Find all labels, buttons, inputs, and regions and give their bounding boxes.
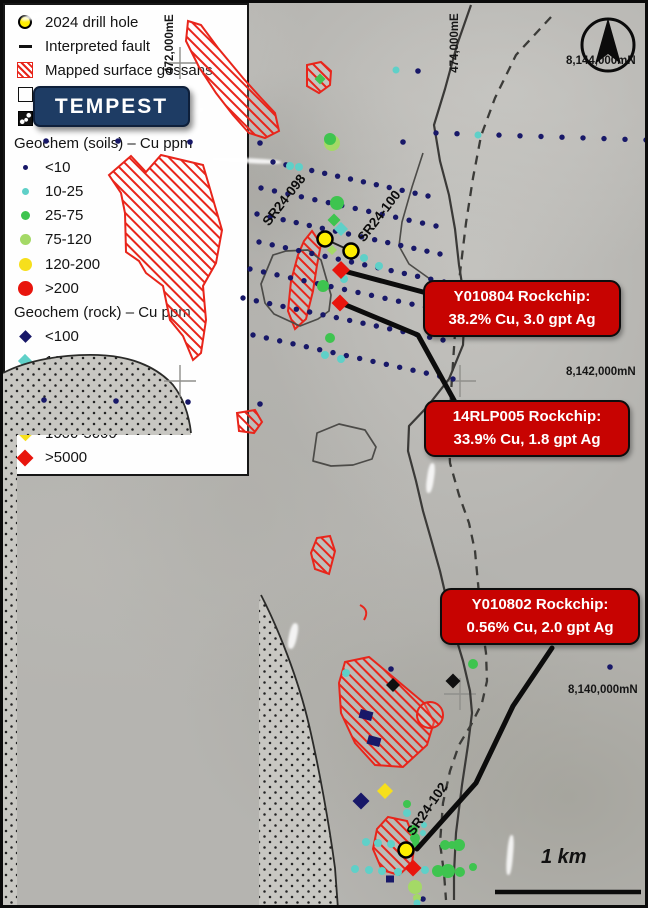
project-title: TEMPEST xyxy=(55,95,168,119)
soil-sample-dot xyxy=(299,194,304,199)
soil-sample-dot xyxy=(322,171,327,176)
soil-sample-dot xyxy=(247,266,252,271)
soil-sample-dot xyxy=(384,362,389,367)
rock-sample-diamond xyxy=(353,793,370,810)
soil-sample-dot xyxy=(393,215,398,220)
soil-sample-dot xyxy=(388,666,394,672)
callout-value: 33.9% Cu, 1.8 gpt Ag xyxy=(432,428,622,451)
rock-sample-diamond xyxy=(446,674,461,689)
soil-sample-dot xyxy=(353,206,358,211)
soil-sample-dot xyxy=(280,304,285,309)
soil-sample-dot xyxy=(349,259,354,264)
soil-sample-dot xyxy=(328,284,333,289)
proterozoic-areas xyxy=(3,355,338,908)
soil-sample-dot xyxy=(317,347,322,352)
drill-hole-marker xyxy=(318,232,333,247)
soil-sample-dot xyxy=(362,262,367,267)
soil-sample-dot xyxy=(454,131,459,136)
soil-sample-dot xyxy=(387,326,392,331)
soil-sample-dot xyxy=(351,865,359,873)
soil-sample-dot xyxy=(185,399,191,405)
soil-sample-dot xyxy=(257,140,263,146)
soil-sample-dot xyxy=(421,866,429,874)
soil-sample-dot xyxy=(397,365,402,370)
soil-sample-dot xyxy=(309,251,314,256)
soil-sample-dot xyxy=(385,240,390,245)
contact-loop xyxy=(313,424,376,466)
soil-sample-dot xyxy=(362,838,370,846)
soil-sample-dot xyxy=(256,239,261,244)
soil-sample-dot xyxy=(398,243,403,248)
easting-label-474000: 474,000mE xyxy=(449,13,461,72)
soil-sample-dot xyxy=(374,839,382,847)
northing-label-8142000: 8,142,000mN xyxy=(566,366,636,378)
soil-sample-dot xyxy=(374,182,379,187)
soil-sample-dot xyxy=(294,307,299,312)
soil-sample-dot xyxy=(453,839,465,851)
callout-value: 0.56% Cu, 2.0 gpt Ag xyxy=(448,616,632,639)
soil-sample-dot xyxy=(433,130,438,135)
scale-bar-label: 1 km xyxy=(541,846,587,869)
soil-sample-dot xyxy=(321,351,329,359)
soil-sample-dot xyxy=(294,220,299,225)
soil-sample-dot xyxy=(415,274,420,279)
high-grade-rock-diamond xyxy=(332,295,349,312)
callout-y010802: Y010802 Rockchip: 0.56% Cu, 2.0 gpt Ag xyxy=(440,588,640,645)
high-grade-rock-diamond xyxy=(332,261,350,279)
soil-sample-dot xyxy=(295,163,303,171)
soil-sample-dot xyxy=(393,67,400,74)
dashed-fault xyxy=(440,17,551,900)
soil-sample-dot xyxy=(43,138,49,144)
soil-sample-dot xyxy=(559,135,564,140)
soil-sample-dot xyxy=(412,190,417,195)
project-title-banner: TEMPEST xyxy=(33,86,190,127)
soil-sample-dot xyxy=(374,323,379,328)
callout-14rlp005: 14RLP005 Rockchip: 33.9% Cu, 1.8 gpt Ag xyxy=(424,400,630,457)
soil-sample-dot xyxy=(415,68,421,74)
north-arrow-icon xyxy=(579,16,637,74)
soil-sample-dot xyxy=(643,137,648,142)
soil-sample-dot xyxy=(322,254,327,259)
soil-sample-dot xyxy=(517,133,522,138)
soil-sample-dot xyxy=(369,293,374,298)
soil-sample-dot xyxy=(469,863,477,871)
soil-sample-dot xyxy=(346,231,351,236)
soil-sample-dot xyxy=(342,287,347,292)
soil-sample-dot xyxy=(365,866,373,874)
soil-sample-dot xyxy=(424,370,429,375)
soil-sample-dot xyxy=(402,271,407,276)
soil-sample-dot xyxy=(355,290,360,295)
soil-sample-dot xyxy=(360,321,365,326)
soil-sample-dot xyxy=(307,223,312,228)
soil-sample-dot xyxy=(378,867,386,875)
soil-sample-dot xyxy=(622,137,627,142)
northing-label-8140000: 8,140,000mN xyxy=(568,684,638,696)
soil-sample-dot xyxy=(304,344,309,349)
soil-sample-dot xyxy=(387,840,395,848)
drill-hole-marker xyxy=(344,244,359,259)
soil-sample-dot xyxy=(437,251,442,256)
soil-sample-dot xyxy=(254,211,259,216)
soil-sample-dot xyxy=(399,188,404,193)
soil-sample-dot xyxy=(324,133,336,145)
soil-sample-dot xyxy=(296,248,301,253)
soil-sample-dot xyxy=(334,315,339,320)
soil-sample-dot xyxy=(382,296,387,301)
soil-sample-dot xyxy=(411,246,416,251)
callout-title: 14RLP005 Rockchip: xyxy=(432,405,622,428)
soil-sample-dot xyxy=(317,280,329,292)
soil-sample-dot xyxy=(414,900,421,907)
soil-sample-dot xyxy=(288,275,293,280)
soil-sample-dot xyxy=(307,309,312,314)
easting-label-472000: 472,000mE xyxy=(164,14,176,73)
soil-sample-dot xyxy=(396,299,401,304)
callout-title: Y010802 Rockchip: xyxy=(448,593,632,616)
soil-sample-dot xyxy=(425,193,430,198)
soil-sample-dot xyxy=(277,338,282,343)
soil-sample-dot xyxy=(325,333,335,343)
soil-sample-dot xyxy=(250,332,255,337)
soil-sample-dot xyxy=(41,397,47,403)
soil-sample-dot xyxy=(607,664,613,670)
soil-sample-dot xyxy=(440,337,445,342)
soil-sample-dot xyxy=(337,355,345,363)
soil-sample-dot xyxy=(270,242,275,247)
soil-sample-dot xyxy=(240,295,245,300)
soil-sample-dot xyxy=(408,880,422,894)
soil-sample-dot xyxy=(290,341,295,346)
soil-sample-dot xyxy=(283,245,288,250)
rock-sample-square xyxy=(386,876,394,883)
map-canvas: TEMPEST 472,000mE 474,000mE 8,144,000mN … xyxy=(0,0,648,908)
soil-sample-dot xyxy=(394,868,402,876)
soil-sample-dot xyxy=(264,335,269,340)
soil-sample-dot xyxy=(267,301,272,306)
soil-sample-dot xyxy=(475,132,482,139)
soil-sample-dot xyxy=(406,217,411,222)
soil-sample-dot xyxy=(450,376,455,381)
soil-sample-dot xyxy=(330,350,335,355)
soil-sample-dot xyxy=(455,867,465,877)
soil-sample-dot xyxy=(187,139,193,145)
soil-sample-dot xyxy=(309,168,314,173)
soil-sample-dot xyxy=(261,269,266,274)
soil-sample-dot xyxy=(270,159,275,164)
grid-crosses xyxy=(164,47,476,710)
soil-sample-dot xyxy=(388,268,393,273)
callout-value: 38.2% Cu, 3.0 gpt Ag xyxy=(431,308,613,331)
soil-sample-dot xyxy=(320,312,325,317)
soil-sample-dot xyxy=(403,800,411,808)
soil-sample-dot xyxy=(375,262,383,270)
soil-sample-dot xyxy=(360,254,368,262)
soil-sample-dot xyxy=(272,188,277,193)
soil-sample-dot xyxy=(580,135,585,140)
soil-sample-dot xyxy=(361,179,366,184)
soil-sample-dot xyxy=(410,368,415,373)
soil-sample-dot xyxy=(400,139,406,145)
soil-sample-dot xyxy=(420,220,425,225)
soil-sample-dot xyxy=(258,185,263,190)
soil-sample-dot xyxy=(357,356,362,361)
callout-title: Y010804 Rockchip: xyxy=(431,285,613,308)
soil-sample-dot xyxy=(254,298,259,303)
soil-sample-dot xyxy=(441,864,455,878)
soil-sample-dot xyxy=(433,223,438,228)
soil-sample-dot xyxy=(409,301,414,306)
soil-sample-dot xyxy=(468,659,478,669)
callout-y010804: Y010804 Rockchip: 38.2% Cu, 3.0 gpt Ag xyxy=(423,280,621,337)
rock-sample-diamond xyxy=(377,783,393,799)
soil-sample-dot xyxy=(347,318,352,323)
soil-sample-dot xyxy=(372,237,377,242)
soil-sample-dot xyxy=(320,226,325,231)
soil-sample-dot xyxy=(420,830,426,836)
soil-sample-dot xyxy=(538,134,543,139)
soil-sample-dot xyxy=(113,398,119,404)
soil-sample-dot xyxy=(274,272,279,277)
soil-sample-dot xyxy=(348,176,353,181)
soil-sample-dot xyxy=(257,401,263,407)
soil-sample-dot xyxy=(312,197,317,202)
drill-hole-marker xyxy=(399,843,414,858)
soil-sample-dot xyxy=(601,136,606,141)
soil-sample-dot xyxy=(280,217,285,222)
soil-sample-dot xyxy=(403,809,411,817)
soil-sample-dot xyxy=(330,196,344,210)
soil-sample-dot xyxy=(370,359,375,364)
soil-sample-dot xyxy=(301,278,306,283)
soil-sample-dot xyxy=(496,132,501,137)
soil-sample-dot xyxy=(115,138,121,144)
soil-sample-dot xyxy=(424,248,429,253)
soil-sample-dot xyxy=(342,669,350,677)
soil-sample-dot xyxy=(335,173,340,178)
soil-sample-dot xyxy=(336,256,341,261)
soil-sample-dot xyxy=(286,162,294,170)
soil-sample-dot xyxy=(420,896,426,902)
